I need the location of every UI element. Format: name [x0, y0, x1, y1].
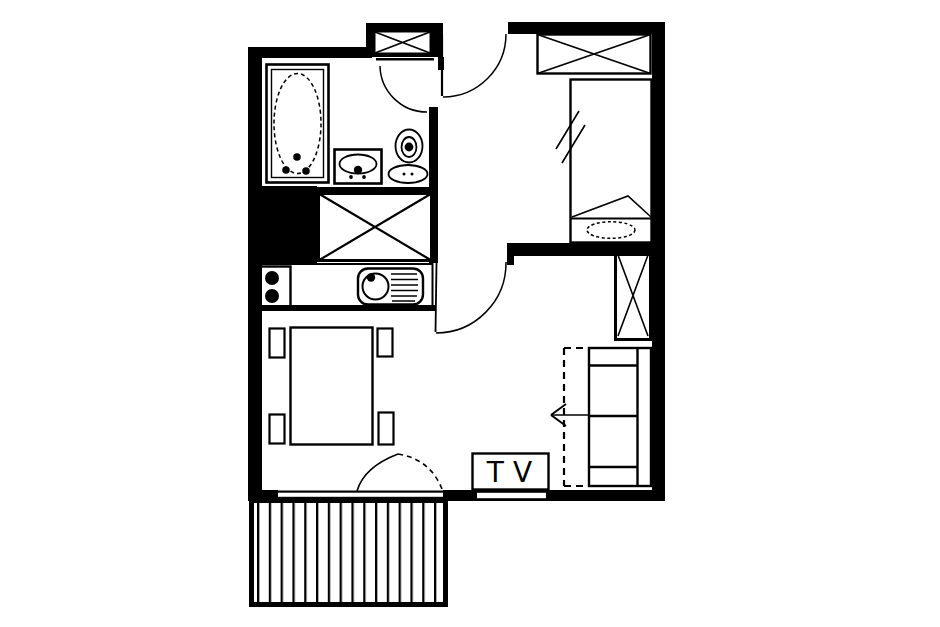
solid-shaft-block — [248, 186, 317, 263]
tv-label: TV — [486, 456, 541, 489]
wall-top-bedroom — [508, 22, 665, 34]
ventilation-shaft-icon — [375, 32, 431, 54]
floor-plan-canvas: TV — [0, 0, 940, 627]
balcony-hatch-icon — [257, 501, 444, 603]
hall-closet-icon — [319, 194, 432, 261]
wall-right — [652, 22, 665, 501]
window-icon — [477, 493, 546, 498]
plan-background — [0, 0, 940, 627]
wall-bedroom-door-stub — [507, 243, 514, 265]
window-balcony-top-line — [277, 491, 444, 493]
vent-underline — [376, 58, 434, 61]
wall-bedroom-bottom — [507, 243, 652, 256]
balcony — [252, 501, 446, 605]
wall-top-bathroom — [248, 47, 372, 58]
wall-bottom-right — [443, 490, 665, 501]
